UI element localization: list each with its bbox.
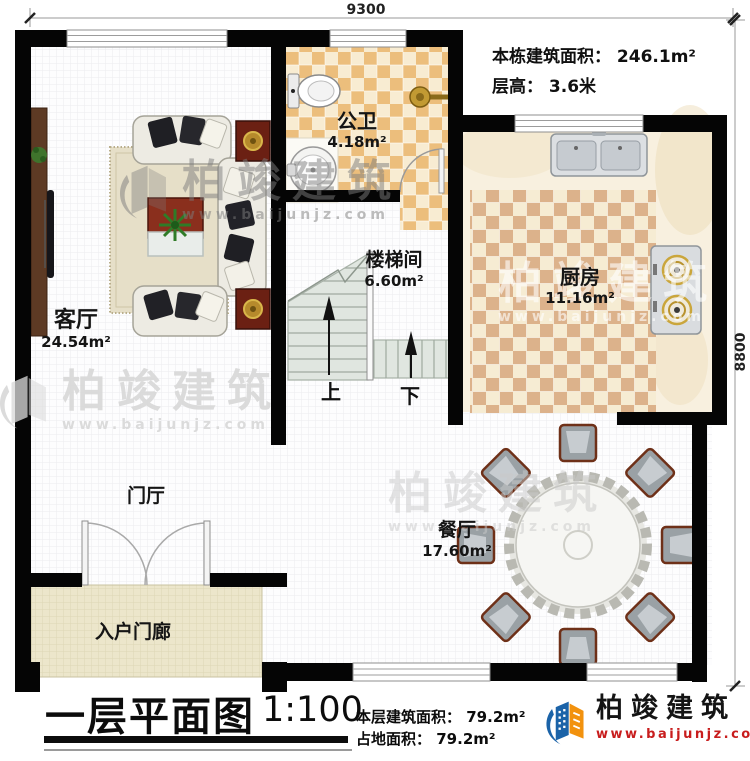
living-room-label: 客厅 24.54m² xyxy=(41,308,111,351)
building-info: 本栋建筑面积： 246.1m² 层高： 3.6米 xyxy=(492,42,696,102)
dining-window-left xyxy=(353,663,490,681)
room-area: 17.60m² xyxy=(422,542,492,560)
dining-window-right xyxy=(587,663,677,681)
coffee-table xyxy=(148,198,203,256)
plan-scale: 1:100 xyxy=(262,690,363,730)
room-area: 6.60m² xyxy=(364,272,423,290)
bathroom-window xyxy=(330,30,406,47)
foyer-label: 门厅 xyxy=(127,486,165,508)
bathroom-label: 公卫 4.18m² xyxy=(327,110,386,151)
dimension-top: 9300 xyxy=(347,2,386,18)
dining-room-label: 餐厅 17.60m² xyxy=(422,520,492,560)
room-name: 楼梯间 xyxy=(364,250,423,272)
plan-title: 一层平面图 xyxy=(45,684,255,742)
footprint-label: 占地面积： xyxy=(356,730,431,748)
dining-chair xyxy=(560,425,596,461)
room-name: 门厅 xyxy=(127,486,165,508)
side-table-top xyxy=(236,121,270,161)
sofa-bottom xyxy=(133,286,227,336)
title-underline-thick xyxy=(44,736,348,743)
sofa-right xyxy=(218,158,266,296)
floor-area-label: 本层建筑面积： xyxy=(356,708,461,726)
room-area: 11.16m² xyxy=(545,289,615,307)
room-area: 4.18m² xyxy=(327,133,386,151)
building-total-area-label: 本栋建筑面积： xyxy=(492,47,611,67)
building-floor-height: 层高： 3.6米 xyxy=(492,72,696,102)
room-name: 客厅 xyxy=(41,308,111,333)
building-total-area-value: 246.1m² xyxy=(617,47,696,67)
kitchen-stove xyxy=(651,246,701,334)
dining-table xyxy=(509,476,647,614)
brand-website: www.baijunjz.com xyxy=(596,727,750,742)
floor-area-value: 79.2m² xyxy=(466,708,525,726)
kitchen-label: 厨房 11.16m² xyxy=(545,266,615,307)
footprint-stat: 占地面积： 79.2m² xyxy=(356,728,495,749)
toilet xyxy=(288,74,340,108)
building-floor-height-value: 3.6米 xyxy=(549,77,596,97)
brand-name: 柏竣建筑 xyxy=(596,694,750,724)
stairwell-label: 楼梯间 6.60m² xyxy=(364,250,423,290)
sofa-top xyxy=(133,115,231,164)
kitchen-sink xyxy=(551,131,647,176)
brand-logo-icon xyxy=(540,694,590,750)
room-name: 厨房 xyxy=(545,266,615,289)
brand-logo: 柏竣建筑 www.baijunjz.com xyxy=(540,694,750,750)
living-room-window xyxy=(67,30,227,47)
stairs-down-label: 下 xyxy=(400,380,420,409)
room-name: 餐厅 xyxy=(422,520,492,542)
entry-porch-label: 入户门廊 xyxy=(95,622,171,644)
room-name: 公卫 xyxy=(327,110,386,133)
dimension-right: 8800 xyxy=(733,333,749,372)
room-name: 入户门廊 xyxy=(95,622,171,644)
floor-plan-page: 柏竣建筑 www.baijunjz.com 柏竣建筑 www.baijunjz.… xyxy=(0,0,750,761)
side-table-bottom xyxy=(236,289,270,329)
building-floor-height-label: 层高： xyxy=(492,77,543,97)
room-area: 24.54m² xyxy=(41,333,111,351)
kitchen-window xyxy=(515,115,643,132)
footprint-value: 79.2m² xyxy=(436,730,495,748)
stairs-up-label: 上 xyxy=(321,376,341,405)
title-underline-thin xyxy=(44,749,352,751)
dining-chair xyxy=(560,629,596,665)
floor-area-stat: 本层建筑面积： 79.2m² xyxy=(356,706,525,727)
building-total-area: 本栋建筑面积： 246.1m² xyxy=(492,42,696,72)
